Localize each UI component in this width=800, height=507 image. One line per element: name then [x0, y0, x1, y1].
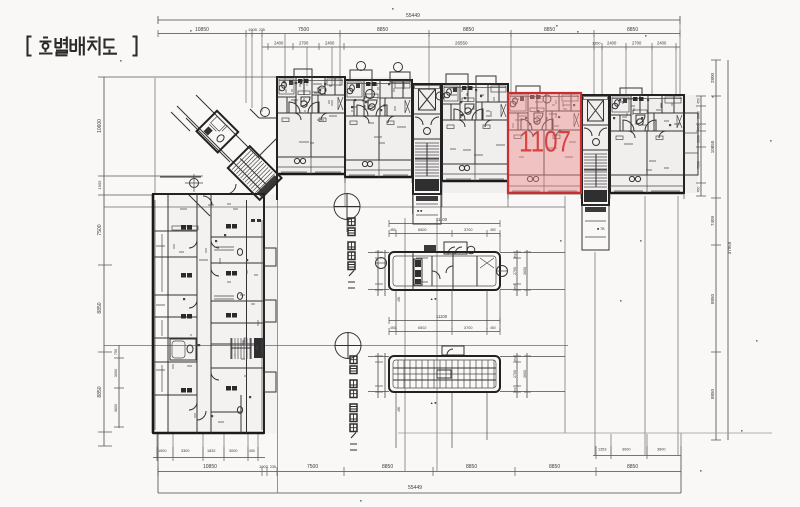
svg-text:8850: 8850: [463, 27, 474, 33]
svg-text:55449: 55449: [406, 13, 420, 19]
svg-text:7409: 7409: [710, 215, 715, 226]
svg-text:11100: 11100: [436, 217, 448, 222]
svg-text:10850: 10850: [710, 140, 715, 153]
svg-text:3600: 3600: [523, 267, 527, 275]
svg-text:11100: 11100: [436, 314, 448, 319]
svg-text:3600: 3600: [114, 404, 118, 412]
svg-text:3900: 3900: [622, 448, 630, 452]
svg-text:7500: 7500: [307, 464, 318, 470]
svg-text:8850: 8850: [549, 464, 560, 470]
svg-text:2700: 2700: [513, 370, 517, 378]
svg-text:3300: 3300: [181, 449, 189, 453]
svg-text:8850: 8850: [710, 293, 715, 304]
svg-text:2400: 2400: [657, 41, 667, 46]
svg-text:■ ■: ■ ■: [417, 209, 422, 213]
svg-text:1500: 1500: [158, 449, 166, 453]
svg-text:450: 450: [249, 449, 255, 453]
svg-text:2700: 2700: [632, 41, 642, 46]
svg-text:1353: 1353: [598, 448, 606, 452]
svg-text:10850: 10850: [203, 464, 217, 470]
svg-text:10850: 10850: [195, 27, 209, 33]
svg-text:55449: 55449: [408, 485, 422, 491]
svg-text:3700: 3700: [464, 228, 472, 232]
svg-text:▲ ■: ▲ ■: [430, 297, 436, 301]
svg-text:2700: 2700: [513, 267, 517, 275]
svg-text:450: 450: [490, 326, 496, 330]
svg-text:8850: 8850: [710, 388, 715, 399]
svg-text:3600: 3600: [657, 448, 665, 452]
svg-text:8850: 8850: [544, 27, 555, 33]
svg-text:1350: 1350: [592, 42, 600, 46]
svg-text:2800: 2800: [710, 72, 715, 83]
svg-text:1107: 1107: [519, 126, 571, 159]
svg-text:235: 235: [259, 28, 265, 32]
svg-text:1905: 1905: [248, 27, 258, 32]
svg-text:▲ ■: ▲ ■: [430, 401, 436, 405]
svg-text:1903: 1903: [259, 464, 269, 469]
svg-text:450: 450: [397, 296, 401, 302]
svg-text:3700: 3700: [464, 326, 472, 330]
svg-text:2700: 2700: [299, 41, 309, 46]
svg-text:8850: 8850: [97, 302, 103, 313]
svg-text:450: 450: [397, 406, 401, 412]
svg-text:37959: 37959: [727, 241, 732, 254]
svg-text:2400: 2400: [325, 41, 335, 46]
svg-text:8850: 8850: [97, 386, 103, 397]
svg-text:2400: 2400: [274, 41, 284, 46]
svg-text:3600: 3600: [523, 370, 527, 378]
svg-text:7500: 7500: [97, 224, 103, 235]
svg-text:7500: 7500: [298, 27, 309, 33]
svg-text:3000: 3000: [114, 369, 118, 377]
svg-text:10600: 10600: [97, 119, 103, 133]
svg-text:8850: 8850: [377, 27, 388, 33]
svg-text:450: 450: [513, 356, 517, 361]
svg-text:6502: 6502: [418, 326, 426, 330]
svg-text:8850: 8850: [627, 27, 638, 33]
svg-text:3000: 3000: [229, 449, 237, 453]
svg-text:26550: 26550: [455, 41, 468, 46]
svg-text:8850: 8850: [466, 464, 477, 470]
svg-text:750: 750: [114, 349, 118, 355]
svg-text:6500: 6500: [418, 228, 426, 232]
svg-text:450: 450: [513, 253, 517, 258]
svg-text:235: 235: [270, 465, 276, 469]
svg-text:2400: 2400: [607, 41, 617, 46]
svg-text:8850: 8850: [382, 464, 393, 470]
svg-text:450: 450: [490, 228, 496, 232]
svg-text:450: 450: [513, 284, 517, 289]
svg-text:■ 7B: ■ 7B: [597, 227, 605, 231]
svg-text:1905: 1905: [97, 180, 102, 190]
svg-text:450: 450: [513, 387, 517, 392]
svg-text:450: 450: [390, 228, 396, 232]
svg-text:8850: 8850: [627, 464, 638, 470]
svg-text:1832: 1832: [207, 449, 215, 453]
svg-text:450: 450: [390, 326, 396, 330]
